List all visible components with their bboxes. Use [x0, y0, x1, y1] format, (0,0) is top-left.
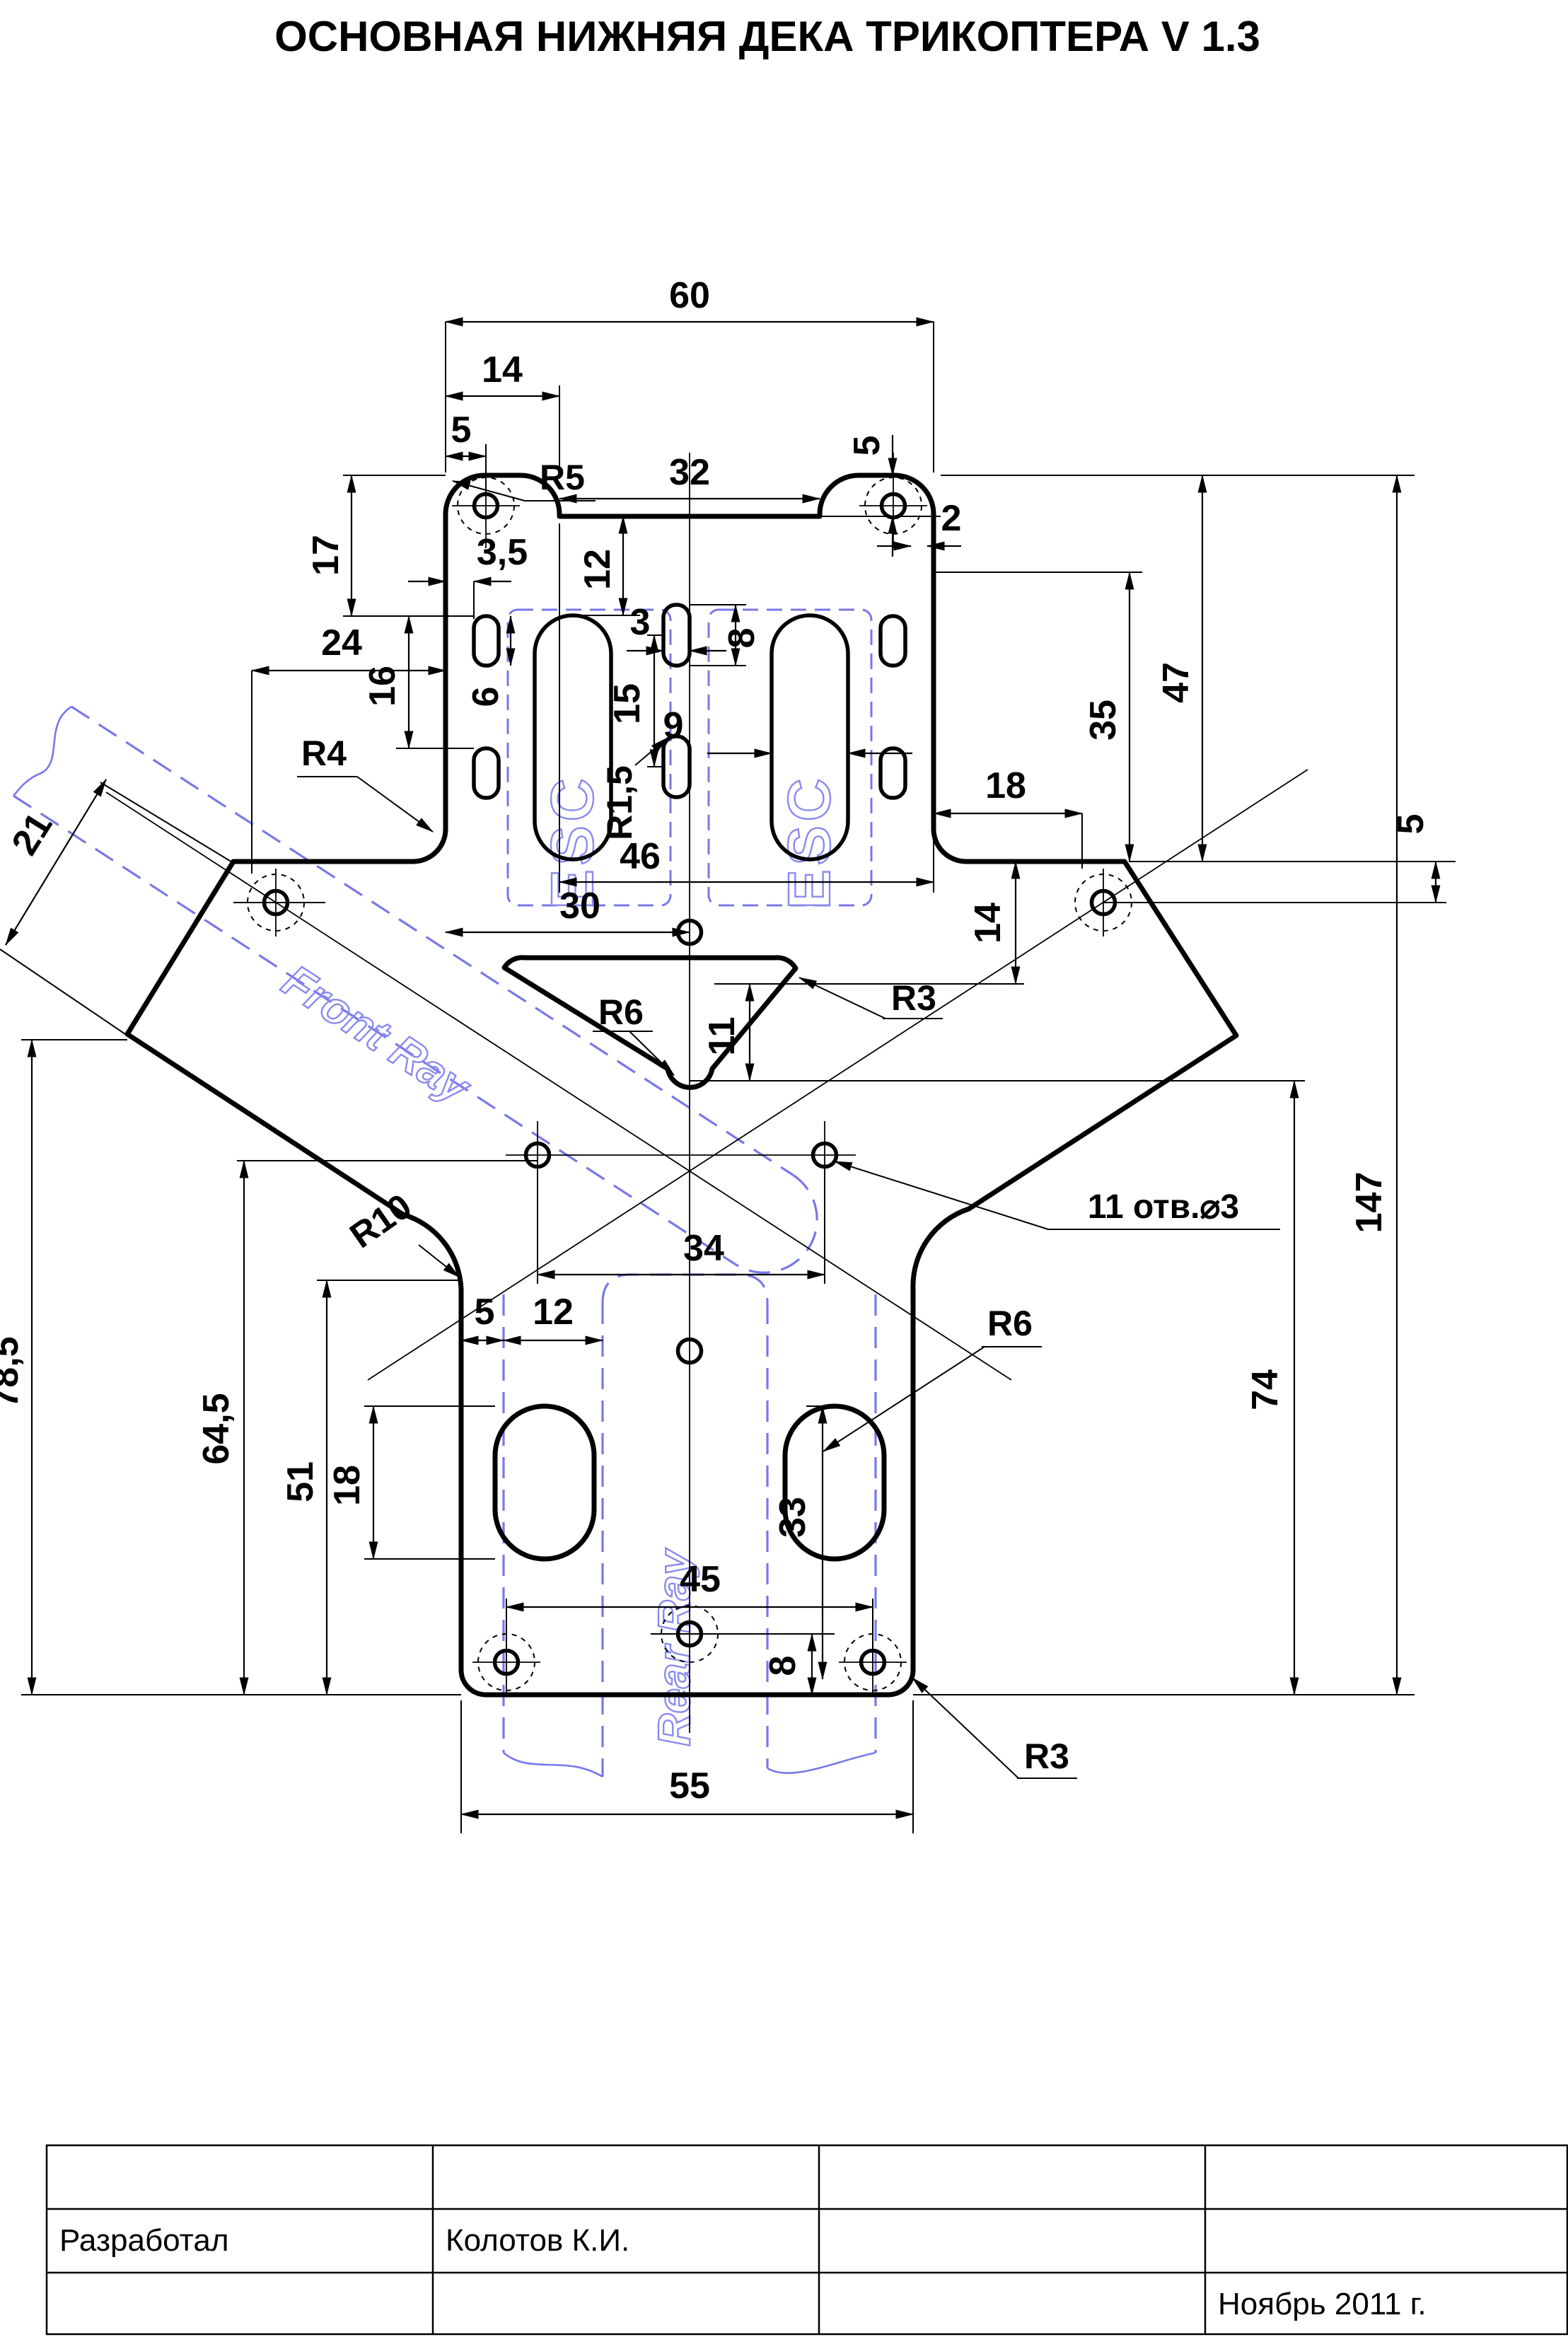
- dim-14-right: 14: [968, 903, 1009, 944]
- break-line: [504, 1753, 603, 1777]
- dim-64-5: 64,5: [196, 1393, 237, 1464]
- dimension-texts: 60 14 5 32 5 17 R5 2 12 3,5 24 16 6 3 8 …: [0, 275, 1431, 1807]
- dim-12: 12: [577, 549, 618, 590]
- dim-3-5: 3,5: [477, 532, 528, 573]
- dim-30: 30: [559, 886, 600, 927]
- dim-34: 34: [683, 1228, 724, 1269]
- part: [127, 475, 1236, 1695]
- break-line: [767, 1753, 876, 1773]
- dim-12-rear: 12: [533, 1292, 574, 1333]
- side-slot: [881, 748, 905, 798]
- dim-r10: R10: [343, 1186, 419, 1256]
- dim-9: 9: [663, 705, 684, 746]
- drawing-canvas: ОСНОВНАЯ НИЖНЯЯ ДЕКА ТРИКОПТЕРА V 1.3 ES…: [0, 0, 1568, 2337]
- dim-51: 51: [280, 1461, 321, 1502]
- dim-16: 16: [362, 666, 403, 707]
- dim-r1-5: R1,5: [600, 765, 639, 840]
- dim-5-notch: 5: [847, 436, 888, 456]
- side-slot: [474, 616, 499, 666]
- developer-name: Колотов К.И.: [446, 2223, 629, 2258]
- dim-24: 24: [321, 622, 362, 663]
- date-cell: Ноябрь 2011 г.: [1218, 2287, 1427, 2321]
- dim-r3-triangle: R3: [891, 978, 936, 1018]
- dim-5-rear: 5: [475, 1292, 495, 1333]
- dim-r6-triangle: R6: [598, 992, 644, 1032]
- dim-r6-oval: R6: [987, 1304, 1033, 1343]
- drawing-sheet: ОСНОВНАЯ НИЖНЯЯ ДЕКА ТРИКОПТЕРА V 1.3 ES…: [0, 0, 1568, 2337]
- dim-18-rear: 18: [327, 1465, 368, 1506]
- dim-5-right: 5: [1390, 814, 1431, 835]
- dim-78-5: 78,5: [0, 1336, 26, 1408]
- side-slot: [474, 748, 499, 798]
- page-title: ОСНОВНАЯ НИЖНЯЯ ДЕКА ТРИКОПТЕРА V 1.3: [274, 13, 1260, 60]
- dim-46: 46: [620, 836, 661, 877]
- dim-147: 147: [1349, 1172, 1390, 1234]
- dim-14: 14: [482, 349, 523, 390]
- dim-32: 32: [669, 452, 710, 493]
- triangle-cutout: [504, 958, 796, 1088]
- dim-r4: R4: [301, 733, 347, 773]
- dim-6: 6: [465, 687, 506, 707]
- side-slot: [881, 616, 905, 666]
- holes-note: 11 отв.⌀3: [1088, 1188, 1239, 1226]
- esc-label-right: ESC: [776, 775, 842, 910]
- rear-boom-endcap: [603, 1275, 767, 1303]
- dim-45: 45: [680, 1559, 721, 1600]
- dim-r3-corner: R3: [1024, 1736, 1069, 1776]
- dim-55: 55: [669, 1765, 710, 1807]
- dim-r5: R5: [540, 458, 585, 497]
- title-block: Разработал Колотов К.И. Ноябрь 2011 г.: [47, 2145, 1567, 2334]
- centerlines: [106, 453, 1308, 1733]
- dimension-lines: [6, 322, 1436, 1814]
- dim-8-rear: 8: [762, 1656, 803, 1676]
- dim-17: 17: [306, 535, 347, 576]
- dim-2: 2: [941, 498, 962, 539]
- dim-15: 15: [607, 683, 648, 724]
- dim-3: 3: [630, 602, 651, 643]
- dim-5-left: 5: [451, 410, 472, 451]
- dim-18-right: 18: [985, 765, 1026, 806]
- front-boom-endcap: [735, 1175, 817, 1272]
- dim-74: 74: [1245, 1369, 1286, 1410]
- dim-11: 11: [702, 1017, 743, 1056]
- developed-label: Разработал: [59, 2223, 229, 2258]
- dim-47: 47: [1156, 662, 1197, 703]
- rear-oval-left: [495, 1406, 594, 1559]
- dim-33: 33: [772, 1497, 813, 1538]
- front-boom-break: [13, 707, 71, 796]
- dim-8: 8: [721, 628, 762, 649]
- dim-21: 21: [4, 806, 61, 862]
- dim-60: 60: [669, 275, 710, 316]
- front-ray-label: Front Ray: [274, 955, 481, 1114]
- dim-35: 35: [1083, 700, 1124, 741]
